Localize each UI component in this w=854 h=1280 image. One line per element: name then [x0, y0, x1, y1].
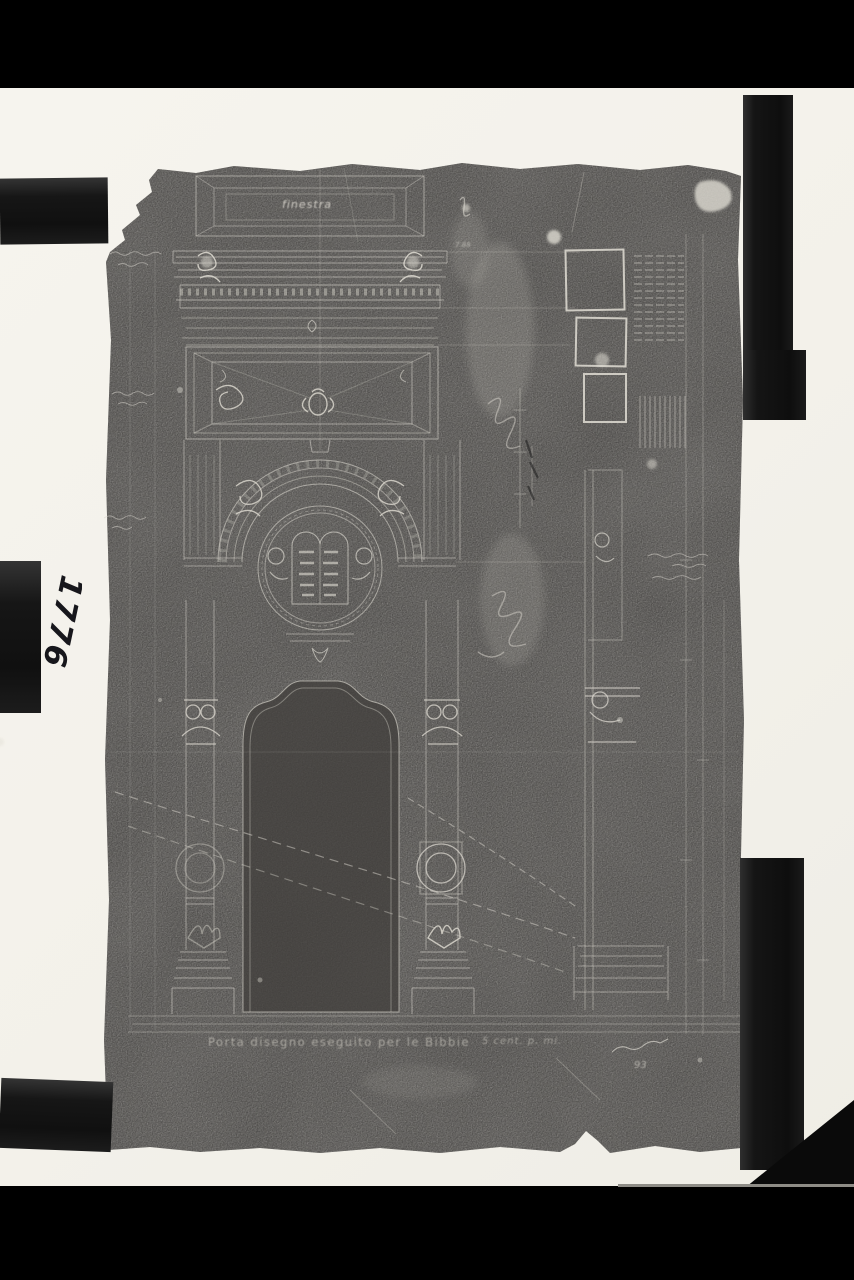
scale-label: 5 cent. p. mi. — [482, 1036, 562, 1047]
signature-year: 93 — [634, 1060, 647, 1071]
mount-clamp-left-top — [0, 177, 108, 244]
door-leaf — [243, 681, 399, 1012]
mount-clamp-right-bottom — [740, 858, 804, 1170]
mount-clamp-right-top — [743, 95, 793, 363]
photograph-of-drawing: finestra 7.88 Porta disegno eseguito per… — [0, 0, 854, 1280]
mount-edge-shadow — [618, 1184, 854, 1187]
mount-clamp-left-middle — [0, 561, 41, 713]
mount-clamp-left-bottom — [0, 1078, 113, 1152]
detail-ref-label: 7.88 — [455, 241, 471, 249]
drawing-title: Porta disegno eseguito per le Bibbie — [208, 1035, 470, 1049]
window-label: finestra — [282, 198, 332, 211]
mount-clamp-right-top-step — [743, 350, 806, 420]
scanned-archive-card: finestra 7.88 Porta disegno eseguito per… — [0, 0, 854, 1280]
